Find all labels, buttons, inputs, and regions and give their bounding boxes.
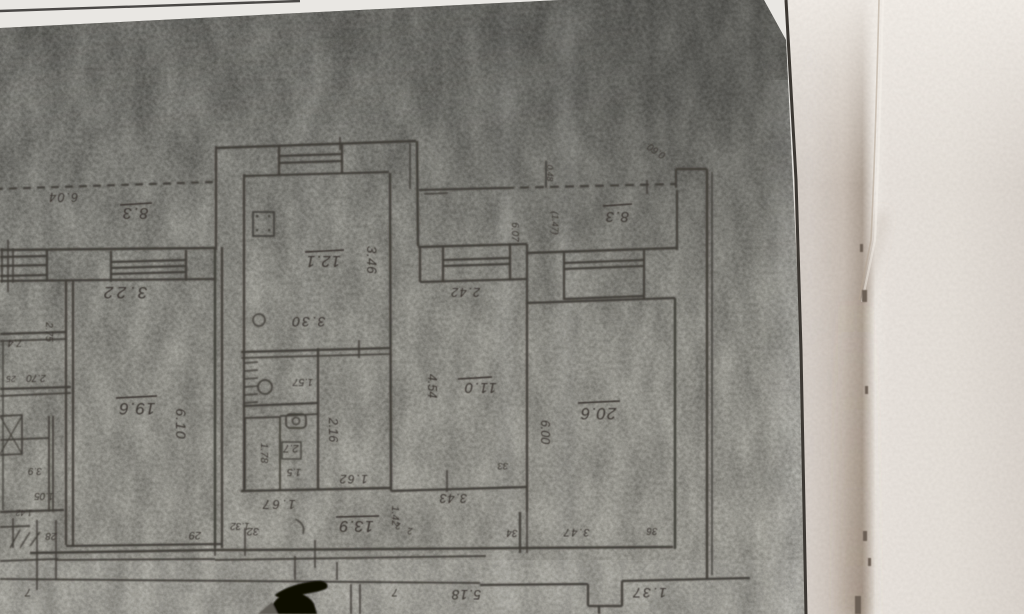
svg-text:33: 33 bbox=[497, 460, 508, 471]
svg-text:7.4: 7.4 bbox=[8, 337, 23, 349]
svg-text:2.75: 2.75 bbox=[43, 321, 54, 342]
svg-text:36: 36 bbox=[646, 525, 658, 536]
svg-text:3.22: 3.22 bbox=[100, 283, 147, 302]
svg-text:12.1: 12.1 bbox=[305, 252, 340, 269]
svg-text:2.70: 2.70 bbox=[26, 372, 47, 383]
svg-text:1.67: 1.67 bbox=[260, 497, 295, 512]
svg-text:3.47: 3.47 bbox=[562, 526, 589, 538]
svg-text:1.32: 1.32 bbox=[230, 520, 250, 531]
svg-text:8.3: 8.3 bbox=[605, 208, 629, 225]
svg-text:6.00: 6.00 bbox=[538, 420, 552, 444]
svg-text:2.7: 2.7 bbox=[282, 442, 299, 454]
svg-text:13.9: 13.9 bbox=[338, 517, 373, 534]
svg-text:(1.47): (1.47) bbox=[550, 211, 560, 235]
svg-text:6.10: 6.10 bbox=[173, 408, 189, 439]
svg-text:4.54: 4.54 bbox=[425, 374, 439, 398]
svg-text:1.62: 1.62 bbox=[338, 472, 367, 486]
svg-text:11.0: 11.0 bbox=[463, 379, 496, 395]
svg-text:2: 2 bbox=[395, 521, 401, 531]
svg-text:8.3: 8.3 bbox=[122, 204, 149, 221]
svg-text:28: 28 bbox=[45, 530, 58, 541]
svg-text:2: 2 bbox=[407, 526, 413, 536]
svg-text:2.42: 2.42 bbox=[450, 285, 481, 299]
svg-text:1.57: 1.57 bbox=[292, 376, 314, 388]
svg-text:1.5: 1.5 bbox=[287, 466, 301, 477]
svg-text:7: 7 bbox=[391, 586, 398, 598]
svg-text:3.46: 3.46 bbox=[364, 246, 379, 274]
svg-text:6.04: 6.04 bbox=[48, 190, 78, 204]
svg-text:19.6: 19.6 bbox=[118, 399, 155, 418]
svg-text:3.43: 3.43 bbox=[439, 491, 467, 505]
svg-text:3.9: 3.9 bbox=[28, 465, 42, 476]
svg-text:32: 32 bbox=[247, 525, 259, 537]
svg-text:1.42: 1.42 bbox=[15, 508, 32, 518]
svg-text:3.30: 3.30 bbox=[290, 314, 325, 330]
svg-text:0.48: 0.48 bbox=[545, 165, 555, 182]
svg-text:1.05: 1.05 bbox=[34, 490, 54, 501]
svg-text:2.16: 2.16 bbox=[326, 417, 340, 442]
svg-text:34: 34 bbox=[506, 527, 518, 538]
svg-text:1.78: 1.78 bbox=[258, 443, 270, 464]
svg-text:20.6: 20.6 bbox=[580, 404, 617, 422]
svg-text:29: 29 bbox=[189, 529, 202, 541]
svg-text:25: 25 bbox=[6, 374, 17, 384]
svg-text:5.18: 5.18 bbox=[451, 587, 481, 602]
svg-text:6.07: 6.07 bbox=[509, 222, 520, 242]
svg-text:7: 7 bbox=[24, 586, 31, 598]
svg-text:1.37: 1.37 bbox=[631, 585, 666, 601]
